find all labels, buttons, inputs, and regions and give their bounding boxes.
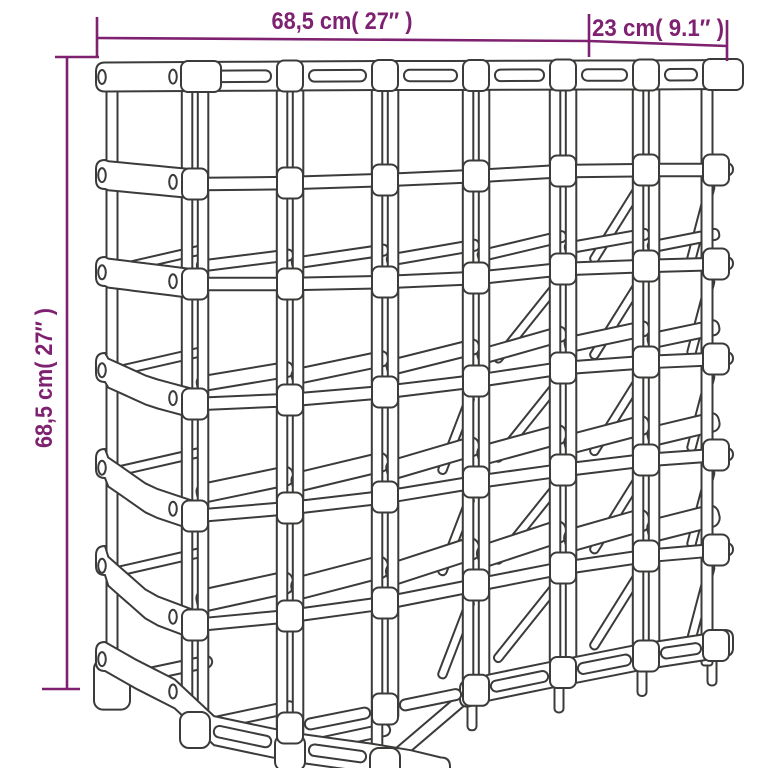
- svg-text:68,5 cm( 27″ ): 68,5 cm( 27″ ): [31, 308, 58, 448]
- svg-text:23 cm( 9.1″ ): 23 cm( 9.1″ ): [592, 15, 724, 42]
- svg-text:68,5 cm( 27″ ): 68,5 cm( 27″ ): [272, 8, 413, 35]
